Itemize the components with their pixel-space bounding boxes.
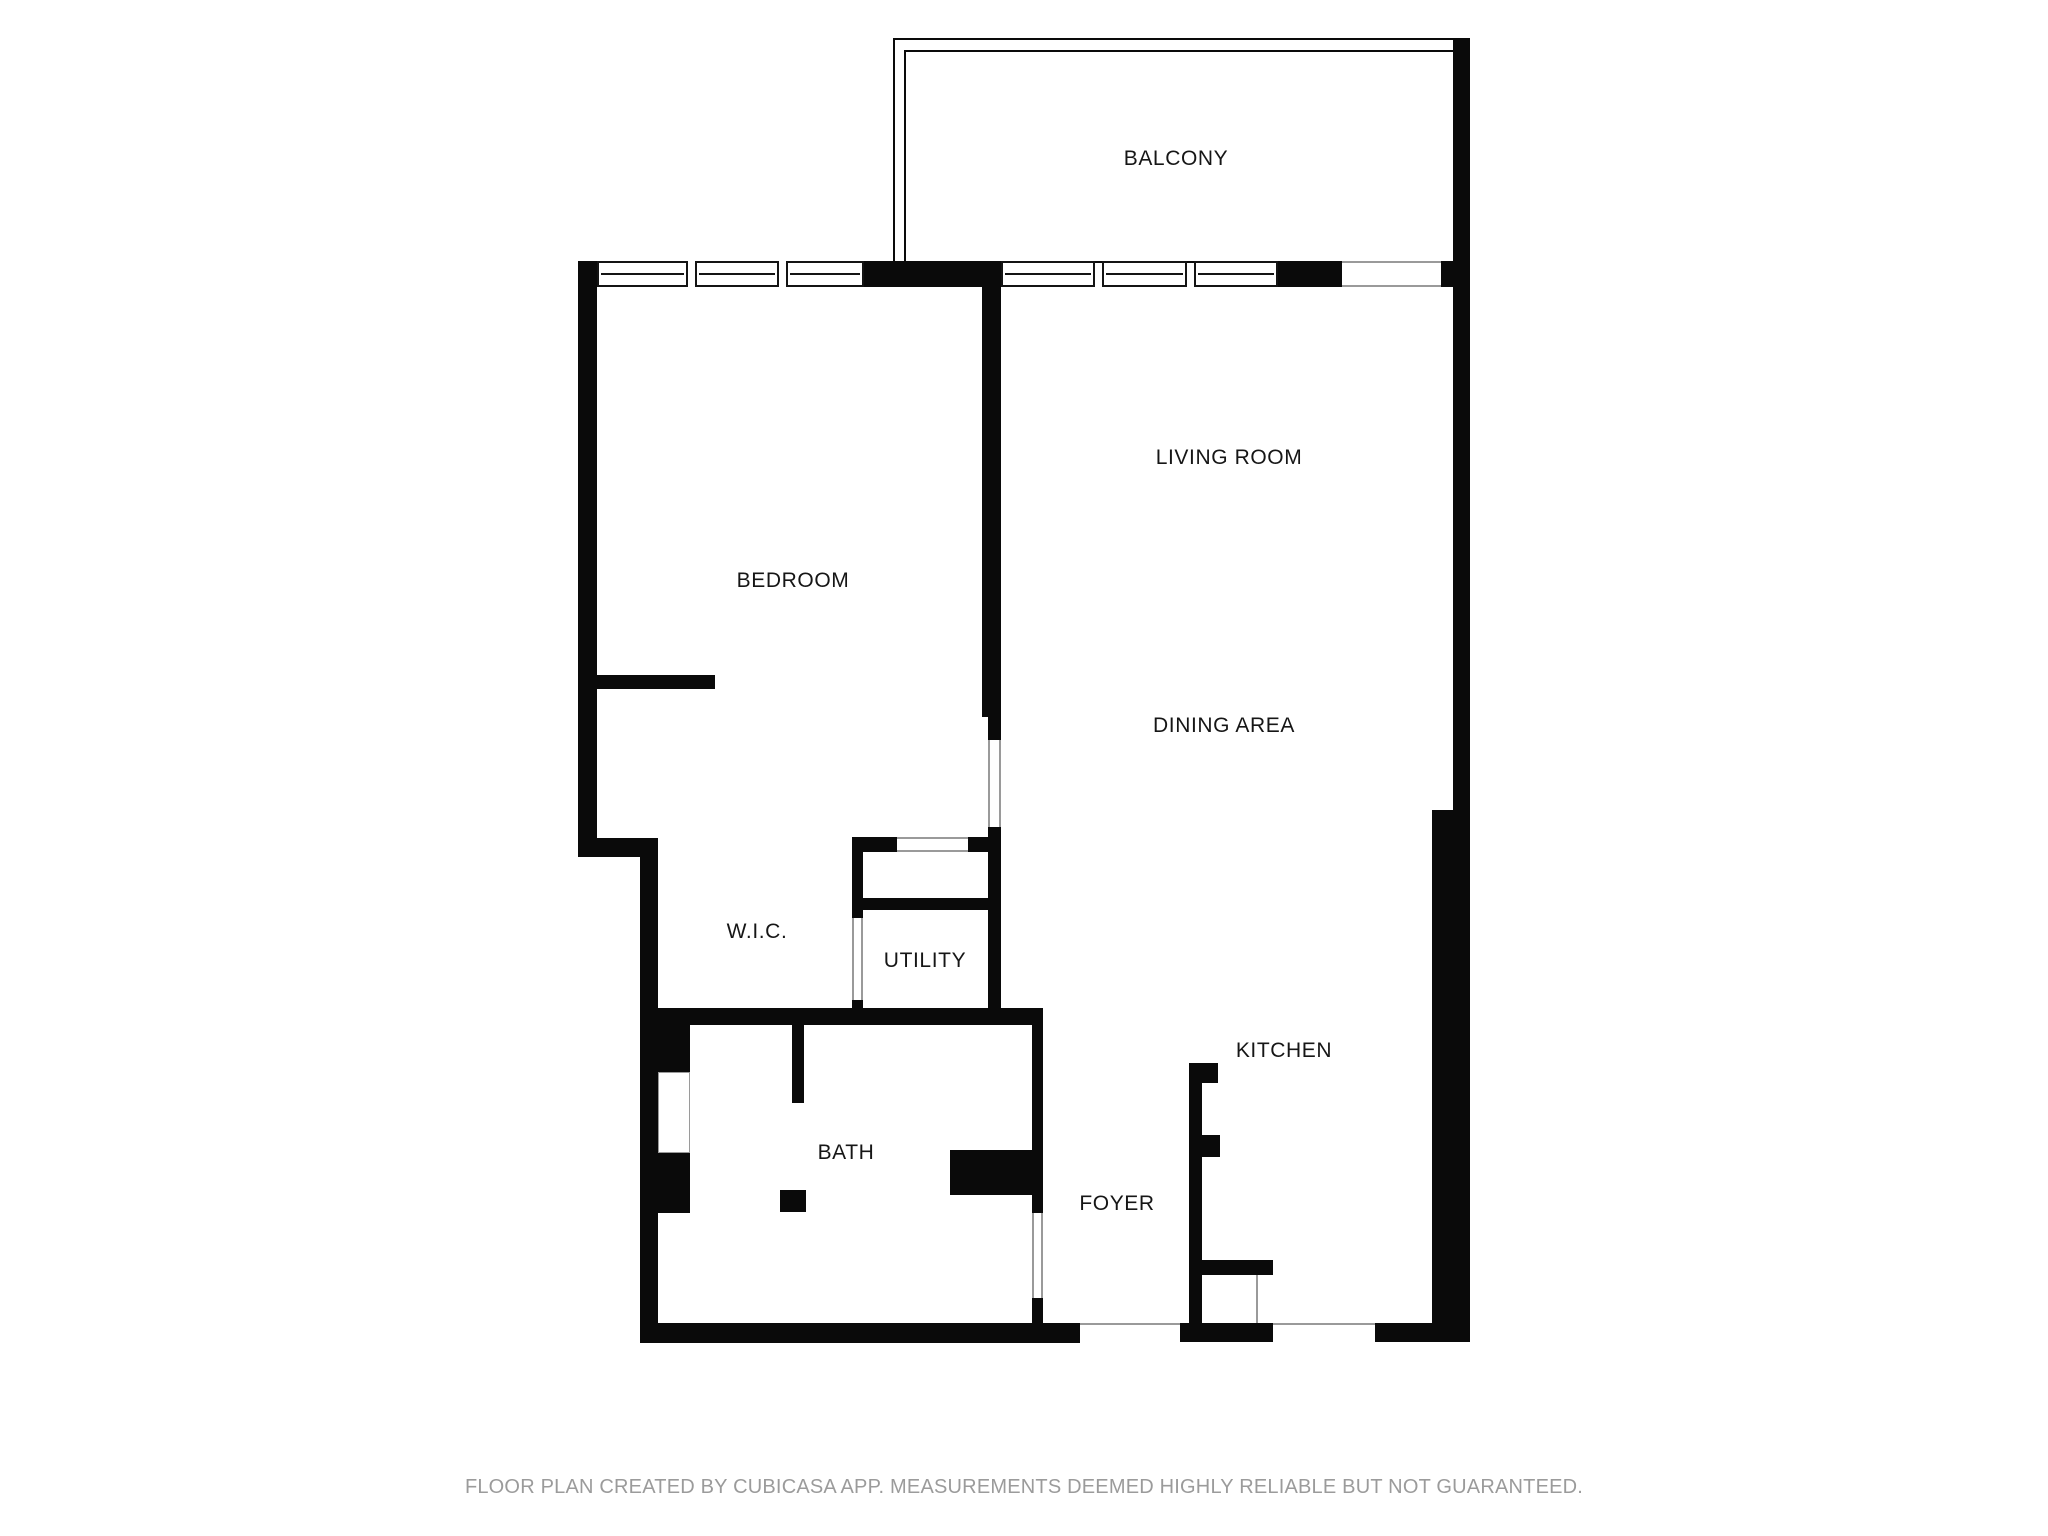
- wall-segment: [950, 1150, 1032, 1195]
- wall-segment: [792, 1025, 804, 1103]
- window-midline: [1198, 273, 1274, 275]
- wall-segment: [1453, 40, 1470, 810]
- window-midline: [699, 273, 775, 275]
- window: [597, 261, 688, 287]
- wall-segment: [1432, 810, 1470, 1342]
- wall-segment: [982, 285, 1001, 717]
- window: [786, 261, 864, 287]
- wall-segment: [864, 261, 1001, 287]
- door-opening: [1202, 1275, 1258, 1323]
- wall-segment: [658, 1153, 690, 1213]
- door-opening: [1273, 1323, 1375, 1327]
- wall-segment: [1032, 1298, 1043, 1323]
- wall-segment: [1189, 1260, 1273, 1275]
- wall-segment: [1032, 1025, 1043, 1213]
- wall-segment: [658, 1025, 690, 1072]
- footer-disclaimer: FLOOR PLAN CREATED BY CUBICASA APP. MEAS…: [0, 1476, 2048, 1499]
- door-opening: [658, 1072, 690, 1153]
- wall-segment: [657, 1008, 1043, 1025]
- wall-segment: [640, 838, 658, 1343]
- wall-segment: [1202, 1135, 1220, 1157]
- room-label-living-room: LIVING ROOM: [1156, 446, 1303, 470]
- door-opening: [897, 837, 968, 852]
- window-midline: [1005, 273, 1091, 275]
- wall-segment: [780, 1190, 806, 1212]
- wall-segment: [578, 261, 597, 857]
- window: [695, 261, 779, 287]
- room-label-bath: BATH: [818, 1141, 875, 1165]
- wall-segment: [863, 898, 988, 910]
- room-label-foyer: FOYER: [1079, 1192, 1154, 1216]
- window-midline: [1106, 273, 1183, 275]
- room-label-balcony: BALCONY: [1124, 147, 1229, 171]
- door-opening: [1032, 1213, 1043, 1298]
- door-opening: [1080, 1323, 1180, 1327]
- wall-segment: [1441, 261, 1453, 287]
- door-opening: [988, 740, 1001, 827]
- wall-segment: [1189, 1063, 1202, 1342]
- door-opening: [852, 918, 863, 1000]
- wall-segment: [597, 675, 715, 689]
- door-opening: [1342, 261, 1441, 287]
- window: [1194, 261, 1278, 287]
- room-label-dining-area: DINING AREA: [1153, 714, 1295, 738]
- room-label-utility: UTILITY: [884, 949, 966, 973]
- floor-plan: BALCONYLIVING ROOMBEDROOMDINING AREAW.I.…: [0, 0, 2048, 1536]
- wall-segment: [968, 837, 1001, 852]
- floor-plan-page: BALCONYLIVING ROOMBEDROOMDINING AREAW.I.…: [0, 0, 2048, 1536]
- wall-segment: [988, 827, 1001, 1013]
- window: [1001, 261, 1095, 287]
- wall-segment: [988, 717, 1001, 740]
- wall-segment: [852, 837, 863, 918]
- room-label-kitchen: KITCHEN: [1236, 1039, 1332, 1063]
- window-midline: [790, 273, 860, 275]
- wall-segment: [642, 1323, 1080, 1343]
- room-label-bedroom: BEDROOM: [737, 569, 850, 593]
- window: [1102, 261, 1187, 287]
- wall-segment: [1202, 1063, 1218, 1083]
- wall-segment: [1278, 261, 1342, 287]
- window-midline: [601, 273, 684, 275]
- room-label-wic: W.I.C.: [727, 920, 788, 944]
